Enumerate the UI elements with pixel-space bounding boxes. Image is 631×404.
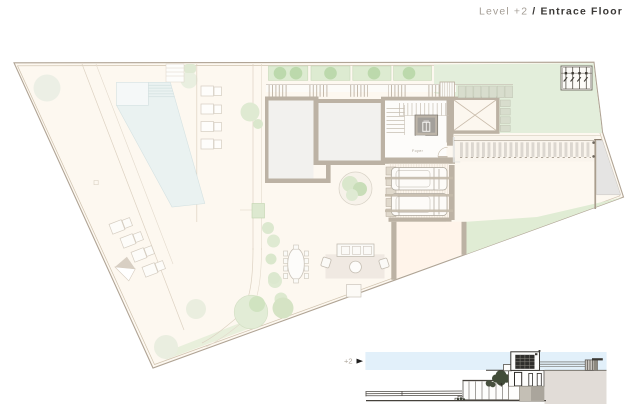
svg-text:Level +2 / Entrace Floor: Level +2 / Entrace Floor xyxy=(479,7,623,18)
svg-text:+2: +2 xyxy=(344,357,353,366)
svg-text:Foyer: Foyer xyxy=(412,149,424,153)
